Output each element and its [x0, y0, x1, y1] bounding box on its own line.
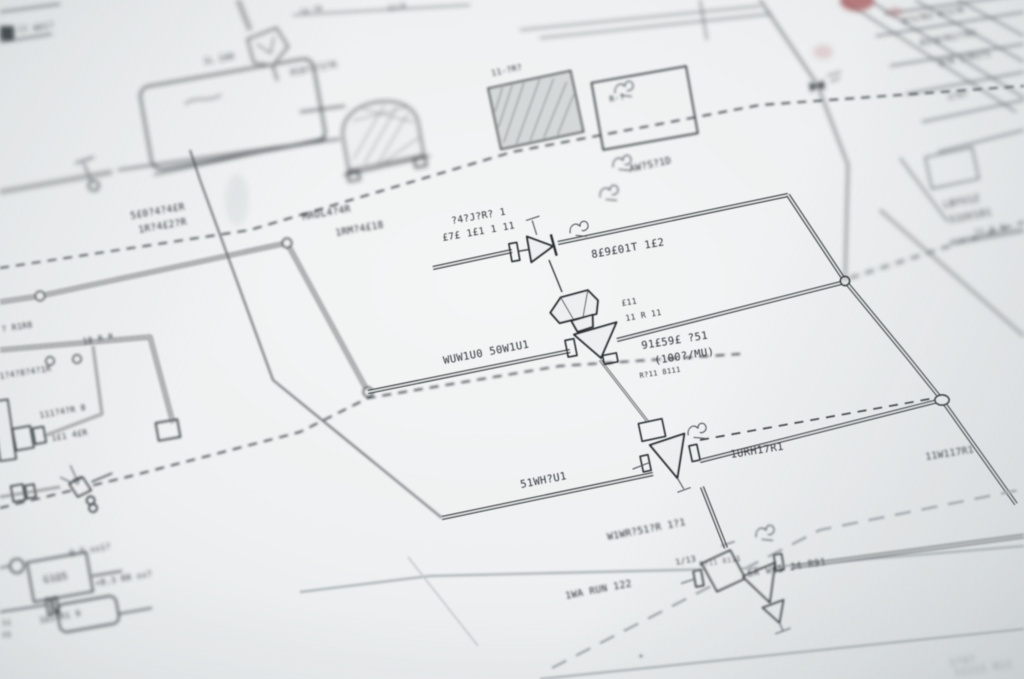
stamp-smudge	[888, 7, 902, 17]
ink-dot	[639, 654, 643, 658]
stamp-ghost	[813, 45, 833, 59]
paper-shadow-smudge	[225, 174, 249, 226]
junction-node	[36, 292, 45, 301]
junction-node	[73, 355, 81, 363]
junction-node	[935, 395, 949, 405]
schematic-photo: 1.11 WH1? 1L 2AR ?4·?R 11/4 810?4?2?R	[0, 0, 1024, 679]
junction-node	[283, 239, 292, 248]
photographed-blueprint: 1.11 WH1? 1L 2AR ?4·?R 11/4 810?4?2?R	[0, 0, 1024, 679]
label: 15	[2, 631, 11, 639]
label: 11	[2, 619, 11, 627]
